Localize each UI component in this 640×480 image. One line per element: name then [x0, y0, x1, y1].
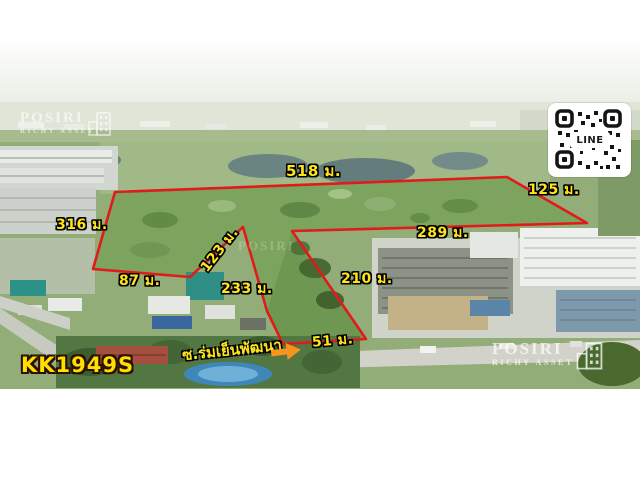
measurement-bottom-left: 87 ม.	[119, 274, 160, 288]
measurement-inner-diagonal: 210 ม.	[341, 272, 393, 286]
brand-watermark-center: POSIRI	[238, 238, 295, 254]
brand-watermark-top-left: POSIRI RICHY ASSET	[20, 111, 95, 135]
listing-code-badge: KK1949S	[21, 355, 134, 376]
brand-building-icon	[574, 340, 606, 372]
brand-tagline: RICHY ASSET	[492, 359, 574, 367]
brand-tagline: RICHY ASSET	[20, 128, 95, 135]
measurement-inner-top: 289 ม.	[417, 226, 469, 240]
aerial-photo	[0, 0, 640, 480]
brand-watermark-bottom-right: POSIRI RICHY ASSET	[492, 340, 574, 367]
terrain	[0, 0, 640, 480]
brand-building-icon	[86, 110, 114, 138]
measurement-right: 125 ม.	[528, 183, 580, 197]
measurement-notch-bottom: 233 ม.	[221, 282, 273, 296]
measurement-frontage: 51 ม.	[311, 332, 353, 350]
brand-name: POSIRI	[20, 111, 95, 126]
brand-name: POSIRI	[492, 340, 574, 357]
land-listing-image: 518 ม. 125 ม. 316 ม. 87 ม. 123 ม. 233 ม.…	[0, 0, 640, 480]
measurement-left: 316 ม.	[56, 218, 108, 232]
measurement-top: 518 ม.	[286, 164, 341, 179]
line-label: LINE	[570, 132, 610, 148]
